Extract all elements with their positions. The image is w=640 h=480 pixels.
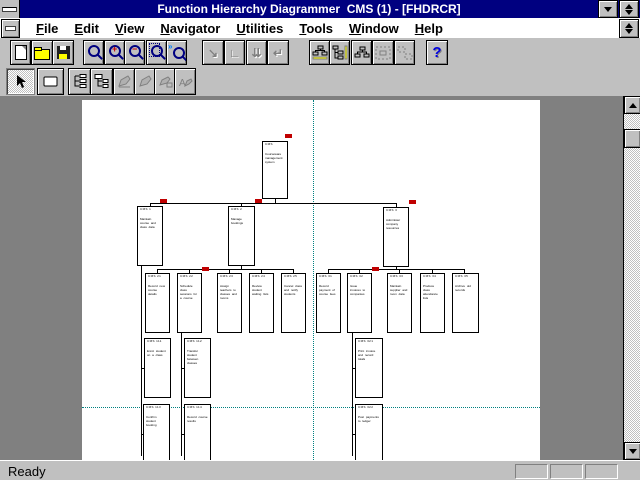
menu-edit[interactable]: Edit — [66, 19, 107, 38]
change-flag-icon — [255, 199, 262, 203]
function-box-function-3-5[interactable]: CMS 35Archive old records — [452, 273, 479, 333]
function-box-function-3-2-1[interactable]: CMS 321Print invoice and record totals — [355, 338, 383, 398]
function-code: CMS 112 — [187, 340, 210, 344]
function-description: Record new course details — [148, 284, 167, 297]
function-code: CMS 114 — [187, 406, 210, 410]
change-flag-icon — [409, 200, 416, 204]
open-button[interactable] — [31, 40, 53, 65]
menu-tools[interactable]: Tools — [291, 19, 341, 38]
zoom-out-button[interactable]: − — [124, 40, 145, 65]
function-code: CMS 22 — [180, 275, 201, 279]
function-code: CMS 2 — [231, 208, 254, 212]
menu-bar: FileEditViewNavigatorUtilitiesToolsWindo… — [0, 18, 640, 39]
scroll-up-button[interactable] — [624, 96, 640, 114]
status-text: Ready — [0, 464, 515, 479]
function-description: Administer company resources — [386, 218, 406, 231]
function-description: Enrol student on a class — [147, 349, 168, 357]
function-code: CMS 24 — [252, 275, 273, 279]
function-code: CMS 21 — [148, 275, 169, 279]
minimize-icon — [604, 7, 612, 12]
function-description: Manage bookings — [231, 217, 252, 225]
restore-up-icon — [625, 4, 633, 9]
change-flag-icon — [285, 134, 292, 138]
function-description: Issue invoices to companies — [350, 284, 369, 297]
change-flag-icon — [202, 267, 209, 271]
menu-items: FileEditViewNavigatorUtilitiesToolsWindo… — [20, 19, 619, 38]
connector-line — [352, 333, 353, 456]
menu-view[interactable]: View — [107, 19, 152, 38]
function-description: Print invoice and record totals — [358, 349, 380, 362]
zoom-selection-button[interactable]: » — [166, 40, 187, 65]
collapse-hierarchy-tool[interactable] — [90, 68, 113, 95]
document-system-menu-button[interactable] — [1, 19, 20, 38]
function-box-function-3-4[interactable]: CMS 34Produce class attendance lists — [420, 273, 445, 333]
scrollbar-thumb[interactable] — [624, 129, 640, 148]
layout-hybrid-button[interactable] — [351, 40, 372, 65]
collapse-node-button[interactable]: ∟ — [224, 40, 245, 65]
layout-horizontal-button[interactable] — [309, 40, 330, 65]
change-flag-icon — [372, 267, 379, 271]
function-code: CMS 32 — [350, 275, 371, 279]
menu-help[interactable]: Help — [407, 19, 451, 38]
function-box-root-function[interactable]: CMSCourseware management system — [262, 141, 288, 199]
document-restore-button[interactable] — [619, 19, 639, 38]
function-box-function-3-1[interactable]: CMS 31Record payment of course fees — [316, 273, 341, 333]
status-panel — [585, 464, 618, 479]
function-box-function-1[interactable]: CMS 1Maintain course and class data — [137, 206, 163, 266]
scroll-down-button[interactable] — [624, 442, 640, 460]
new-button[interactable] — [10, 40, 31, 65]
function-code: CMS 111 — [147, 340, 170, 344]
function-code: CMS 34 — [423, 275, 444, 279]
function-description: Cancel class and notify students — [284, 284, 303, 297]
status-panel — [550, 464, 583, 479]
function-box-function-1-1[interactable]: CMS 111Enrol student on a class — [144, 338, 171, 398]
function-description: Transfer student between classes — [187, 349, 208, 366]
scroll-down-icon — [629, 449, 637, 454]
diagram-canvas[interactable]: CMSCourseware management systemCMS 1Main… — [82, 100, 540, 460]
layout-vertical-button[interactable] — [329, 40, 350, 65]
function-description: Record course results — [187, 415, 208, 423]
function-box-function-2-5[interactable]: CMS 25Cancel class and notify students — [281, 273, 306, 333]
document-system-menu-dash-icon — [5, 26, 16, 31]
toolbar-area: +−»↘∟⇊↵? A — [0, 38, 640, 98]
page-break-guide-vertical — [313, 100, 314, 460]
connector-line — [157, 269, 294, 270]
function-code: CMS 113 — [146, 406, 169, 410]
function-code: CMS 322 — [358, 406, 382, 410]
function-box-function-2-3[interactable]: CMS 23Assign teachers to classes and roo… — [217, 273, 242, 333]
function-box-function-2-1[interactable]: CMS 21Record new course details — [145, 273, 170, 333]
function-box-function-1-4[interactable]: CMS 114Record course results — [184, 404, 211, 460]
function-code: CMS 23 — [220, 275, 241, 279]
layout-compact-button[interactable] — [394, 40, 415, 65]
vertical-scrollbar[interactable] — [623, 96, 640, 460]
function-box-function-1-3[interactable]: CMS 113Confirm student booking — [143, 404, 170, 460]
expand-all-button[interactable]: ⇊ — [246, 40, 267, 65]
system-menu-dash-icon — [2, 7, 17, 12]
layout-selection-button[interactable] — [372, 40, 394, 65]
function-code: CMS 35 — [455, 275, 478, 279]
function-description: Assign teachers to classes and rooms — [220, 284, 239, 301]
expand-hierarchy-tool[interactable] — [68, 68, 91, 95]
text-style-tool[interactable]: A — [174, 68, 196, 95]
title-bar: Function Hierarchy Diagrammer CMS (1) - … — [0, 0, 640, 19]
status-bar: Ready — [0, 460, 640, 480]
function-code: CMS 3 — [386, 209, 408, 213]
function-code: CMS 33 — [390, 275, 411, 279]
function-description: Archive old records — [455, 284, 476, 292]
function-description: Courseware management system — [265, 152, 285, 165]
connector-line — [150, 203, 397, 204]
function-description: Schedule class sessions for a course — [180, 284, 199, 301]
function-box-function-3[interactable]: CMS 3Administer company resources — [383, 207, 409, 267]
function-description: Record payment of course fees — [319, 284, 338, 297]
function-code: CMS 25 — [284, 275, 305, 279]
connector-line — [181, 333, 182, 456]
function-description: Confirm student booking — [146, 415, 167, 428]
collapse-all-button[interactable]: ↵ — [267, 40, 289, 65]
fill-color-tool[interactable] — [154, 68, 176, 95]
menu-file[interactable]: File — [28, 19, 66, 38]
select-tool[interactable] — [6, 68, 35, 95]
function-box-function-2-4[interactable]: CMS 24Review student waiting lists — [249, 273, 274, 333]
document-restore-up-icon — [625, 23, 633, 28]
menu-utilities[interactable]: Utilities — [228, 19, 291, 38]
function-box-function-3-2-2[interactable]: CMS 322Post payments to ledger — [355, 404, 383, 460]
save-button[interactable] — [52, 40, 74, 65]
edit-label-tool[interactable] — [134, 68, 156, 95]
connector-line — [141, 266, 142, 456]
scroll-up-icon — [629, 103, 637, 108]
help-button[interactable]: ? — [426, 40, 448, 65]
function-code: CMS — [265, 143, 287, 147]
function-code: CMS 1 — [140, 208, 162, 212]
function-box-function-2[interactable]: CMS 2Manage bookings — [228, 206, 255, 266]
window-title: Function Hierarchy Diagrammer CMS (1) - … — [20, 2, 598, 16]
function-description: Produce class attendance lists — [423, 284, 442, 301]
function-box-function-3-2[interactable]: CMS 32Issue invoices to companies — [347, 273, 372, 333]
status-panel — [515, 464, 548, 479]
function-description: Review student waiting lists — [252, 284, 271, 297]
function-box-tool[interactable] — [37, 68, 64, 95]
expand-node-button[interactable]: ↘ — [202, 40, 224, 65]
workspace: CMSCourseware management systemCMS 1Main… — [0, 96, 640, 460]
function-description: Maintain supplier and room data — [390, 284, 409, 297]
change-flag-icon — [160, 199, 167, 203]
application-window: Function Hierarchy Diagrammer CMS (1) - … — [0, 0, 640, 480]
system-menu-button[interactable] — [0, 0, 20, 18]
status-panels — [515, 464, 620, 479]
function-box-function-1-2[interactable]: CMS 112Transfer student between classes — [184, 338, 211, 398]
zoom-in-button[interactable]: + — [104, 40, 125, 65]
function-box-function-3-3[interactable]: CMS 33Maintain supplier and room data — [387, 273, 412, 333]
edit-function-tool[interactable] — [113, 68, 135, 95]
document-restore-down-icon — [625, 29, 633, 34]
function-description: Maintain course and class data — [140, 217, 160, 230]
menu-navigator[interactable]: Navigator — [152, 19, 228, 38]
zoom-fit-button[interactable] — [146, 40, 167, 65]
function-code: CMS 321 — [358, 340, 382, 344]
function-description: Post payments to ledger — [358, 415, 380, 423]
function-box-function-2-2[interactable]: CMS 22Schedule class sessions for a cour… — [177, 273, 202, 333]
menu-window[interactable]: Window — [341, 19, 407, 38]
zoom-button[interactable] — [83, 40, 104, 65]
restore-button[interactable] — [619, 0, 639, 18]
minimize-button[interactable] — [598, 0, 618, 18]
function-code: CMS 31 — [319, 275, 340, 279]
restore-down-icon — [625, 10, 633, 15]
connector-line — [328, 269, 465, 270]
